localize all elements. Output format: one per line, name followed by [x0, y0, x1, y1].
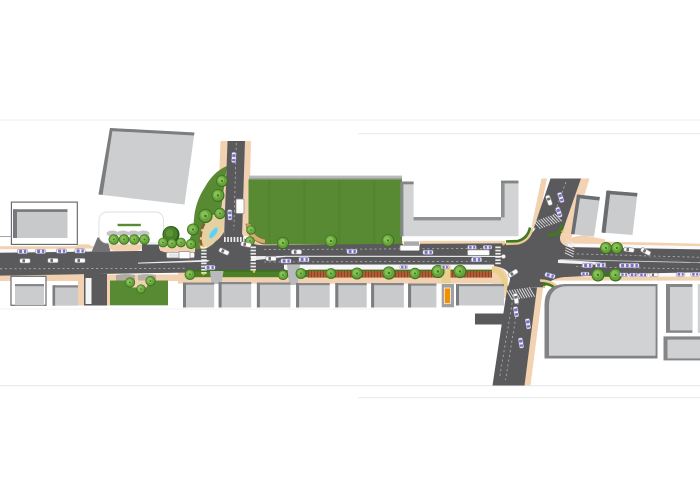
svg-text:NNNN MNNN: NNNN MNNN [509, 285, 528, 289]
